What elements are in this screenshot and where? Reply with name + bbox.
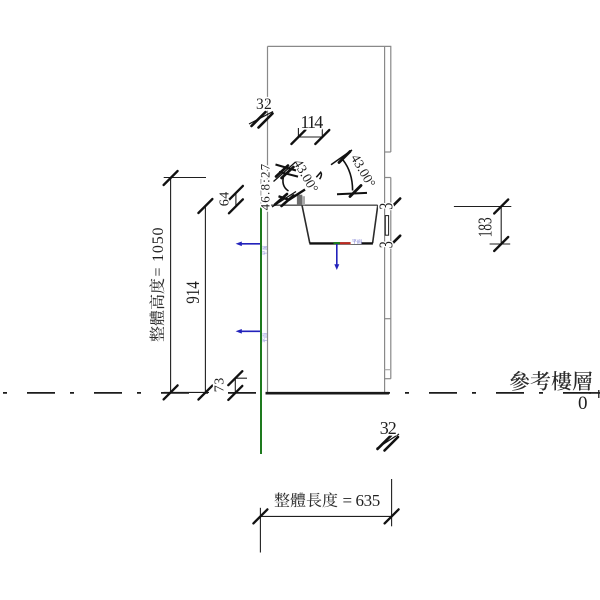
svg-text:0: 0 xyxy=(578,393,588,414)
svg-text:32: 32 xyxy=(256,96,272,113)
svg-text:64: 64 xyxy=(218,191,233,206)
svg-text:32: 32 xyxy=(380,418,396,438)
svg-text:183: 183 xyxy=(474,217,496,237)
svg-text:= 635: = 635 xyxy=(343,491,380,510)
svg-text:3: 3 xyxy=(377,241,398,248)
svg-text:114: 114 xyxy=(300,112,323,132)
svg-text:46.8:27: 46.8:27 xyxy=(258,163,273,211)
svg-text:914: 914 xyxy=(183,281,204,304)
svg-text:3: 3 xyxy=(377,203,398,210)
svg-text:73: 73 xyxy=(213,377,228,392)
svg-text:= 1050: = 1050 xyxy=(150,227,167,277)
